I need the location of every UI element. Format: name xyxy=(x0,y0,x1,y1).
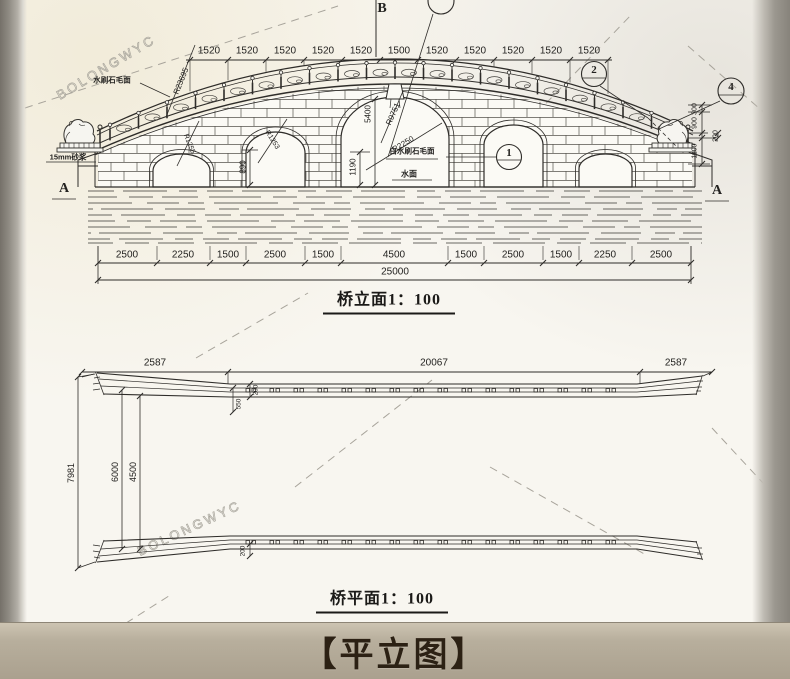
dim-label: 1100 xyxy=(692,143,699,158)
dim-label: 1500 xyxy=(217,250,239,261)
dim-label: 550 xyxy=(236,399,243,410)
water-hatching xyxy=(88,191,702,243)
dim-label: 1520 xyxy=(350,46,372,57)
balloon-2-number: 2 xyxy=(591,64,597,76)
balloon-top-circle xyxy=(428,0,454,14)
section-mark-b: B xyxy=(377,1,386,17)
photo-edge-left xyxy=(0,0,27,622)
dim-label: 1520 xyxy=(426,46,448,57)
plan-lower-railing xyxy=(93,536,703,563)
arch-4 xyxy=(484,125,543,187)
dim-label: 1190 xyxy=(349,158,358,175)
arch-1 xyxy=(153,154,210,187)
plan-railing-posts xyxy=(246,389,616,545)
dim-label: 2500 xyxy=(502,250,524,261)
keystone xyxy=(386,84,404,99)
surface-note: 水刷石毛面 xyxy=(93,75,131,86)
total-dim-label: 25000 xyxy=(381,267,409,278)
dim-label: 900 xyxy=(692,117,699,129)
dim-label: 1520 xyxy=(540,46,562,57)
plan-upper-railing xyxy=(93,372,703,397)
water-level-note: 水面 xyxy=(401,169,417,180)
caption: 【平立图】 xyxy=(303,627,488,676)
caption-bar: 【平立图】 xyxy=(0,622,790,679)
dim-label: 200 xyxy=(240,546,247,557)
dim-label: 1500 xyxy=(455,250,477,261)
watermark-text: BOLONGWYC xyxy=(54,32,159,103)
elevation-title: 桥立面1：100 xyxy=(323,286,455,315)
dim-label: 2250 xyxy=(172,250,194,261)
dim-label: 300 xyxy=(692,103,699,115)
dim-label: 1520 xyxy=(578,46,600,57)
dim-label: 1500 xyxy=(388,46,410,57)
dim-label: 2250 xyxy=(594,250,616,261)
dim-label: 1520 xyxy=(312,46,334,57)
dim-label: 1520 xyxy=(502,46,524,57)
dim-label: 2587 xyxy=(144,358,166,369)
dim-label: 1520 xyxy=(198,46,220,57)
dim-label: 2500 xyxy=(116,250,138,261)
balloon-4-number: 4 xyxy=(728,81,734,93)
dim-label: 6000 xyxy=(110,462,120,482)
dim-label: 2500 xyxy=(264,250,286,261)
dim-label: 890 xyxy=(239,160,248,173)
dim-label: 2587 xyxy=(665,358,687,369)
dim-label: 1520 xyxy=(236,46,258,57)
dim-label: 7981 xyxy=(66,463,76,483)
mortar-note: 15mm砂浆 xyxy=(50,152,87,163)
section-mark-a-left: A xyxy=(59,181,69,197)
dim-label: 1500 xyxy=(550,250,572,261)
surface-note: 白水刷石毛面 xyxy=(390,146,435,157)
dim-label: 200 xyxy=(253,385,260,396)
plan-title: 桥平面1：100 xyxy=(316,585,448,614)
balloon-1-number: 1 xyxy=(506,147,512,159)
section-mark-a-right: A xyxy=(712,183,722,199)
plan-top-dimension xyxy=(82,372,712,384)
dim-label: 200 xyxy=(713,130,720,142)
dim-label: 20067 xyxy=(420,358,448,369)
dim-label: 1520 xyxy=(274,46,296,57)
dim-label: 4500 xyxy=(128,462,138,482)
dim-label: 1500 xyxy=(312,250,334,261)
dim-label: 1520 xyxy=(464,46,486,57)
dim-label: 2500 xyxy=(650,250,672,261)
scanned-drawing-sheet: BOLONGWYC BOLONGWYC xyxy=(0,0,790,679)
photo-edge-right xyxy=(752,0,790,622)
arch-5 xyxy=(579,154,632,187)
dim-label: 5400 xyxy=(364,105,373,123)
dim-label: 4500 xyxy=(383,250,405,261)
